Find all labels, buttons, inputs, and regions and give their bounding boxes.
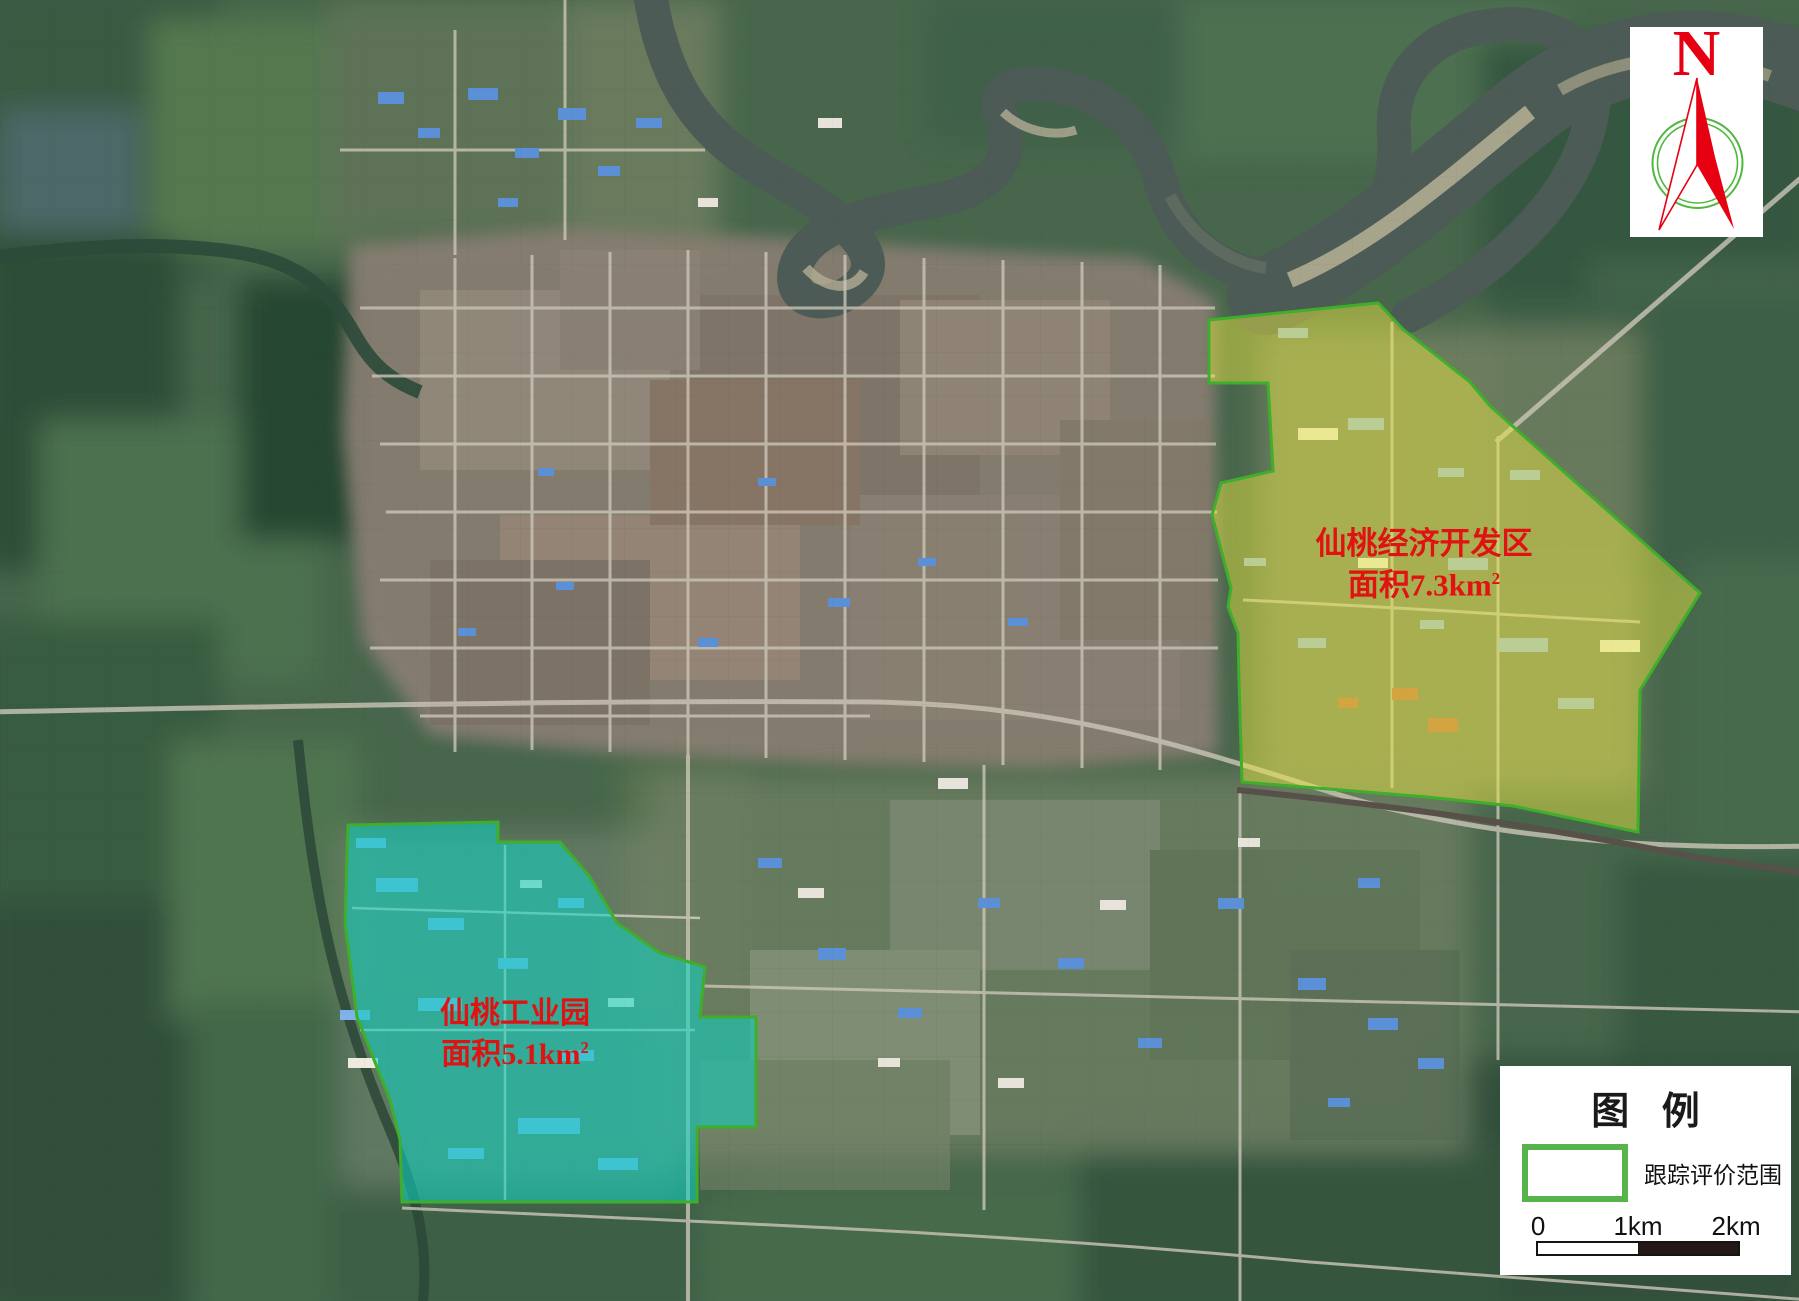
scale-bar-white-segment xyxy=(1538,1243,1638,1254)
zone-name: 仙桃经济开发区 xyxy=(1293,526,1555,561)
scale-tick-1km: 1km xyxy=(1613,1211,1662,1242)
zone-area: 面积7.3km2 xyxy=(1293,561,1555,602)
scale-ticks: 0 1km 2km xyxy=(1536,1211,1740,1241)
north-arrow: N xyxy=(1630,27,1763,237)
zone-area: 面积5.1km2 xyxy=(384,1031,646,1072)
scale-tick-0: 0 xyxy=(1531,1211,1545,1242)
scale-bar-dark-segment xyxy=(1638,1243,1738,1254)
zone-label-economic-development: 仙桃经济开发区 面积7.3km2 xyxy=(1293,526,1555,602)
zone-label-industrial-park: 仙桃工业园 面积5.1km2 xyxy=(384,997,646,1072)
scale-bar: 0 1km 2km xyxy=(1536,1211,1740,1259)
legend-title: 图 例 xyxy=(1500,1080,1791,1135)
scale-bar-track xyxy=(1536,1241,1740,1256)
satellite-map-view: 仙桃经济开发区 面积7.3km2 仙桃工业园 面积5.1km2 N 图 例 跟踪… xyxy=(0,0,1799,1301)
zone-name: 仙桃工业园 xyxy=(384,997,646,1031)
legend-item-label: 跟踪评价范围 xyxy=(1644,1156,1782,1190)
north-letter: N xyxy=(1630,21,1763,87)
legend-panel: 图 例 跟踪评价范围 0 1km 2km xyxy=(1500,1066,1791,1275)
evaluation-boundary-swatch xyxy=(1522,1144,1628,1202)
legend-item: 跟踪评价范围 xyxy=(1522,1144,1782,1202)
scale-tick-2km: 2km xyxy=(1712,1211,1761,1242)
